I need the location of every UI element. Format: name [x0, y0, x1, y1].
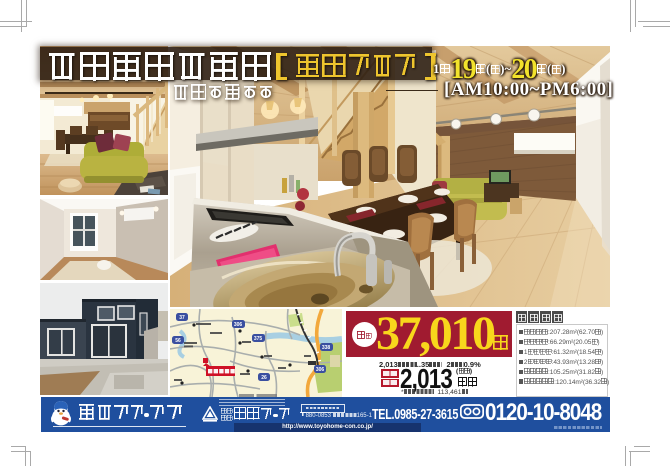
svg-text:375: 375	[254, 336, 263, 342]
svg-text:306: 306	[234, 322, 243, 328]
svg-text:306: 306	[316, 367, 325, 373]
svg-text:26: 26	[261, 375, 267, 381]
svg-text:37: 37	[179, 315, 185, 321]
svg-text:338: 338	[322, 345, 331, 351]
svg-text:56: 56	[175, 338, 181, 344]
